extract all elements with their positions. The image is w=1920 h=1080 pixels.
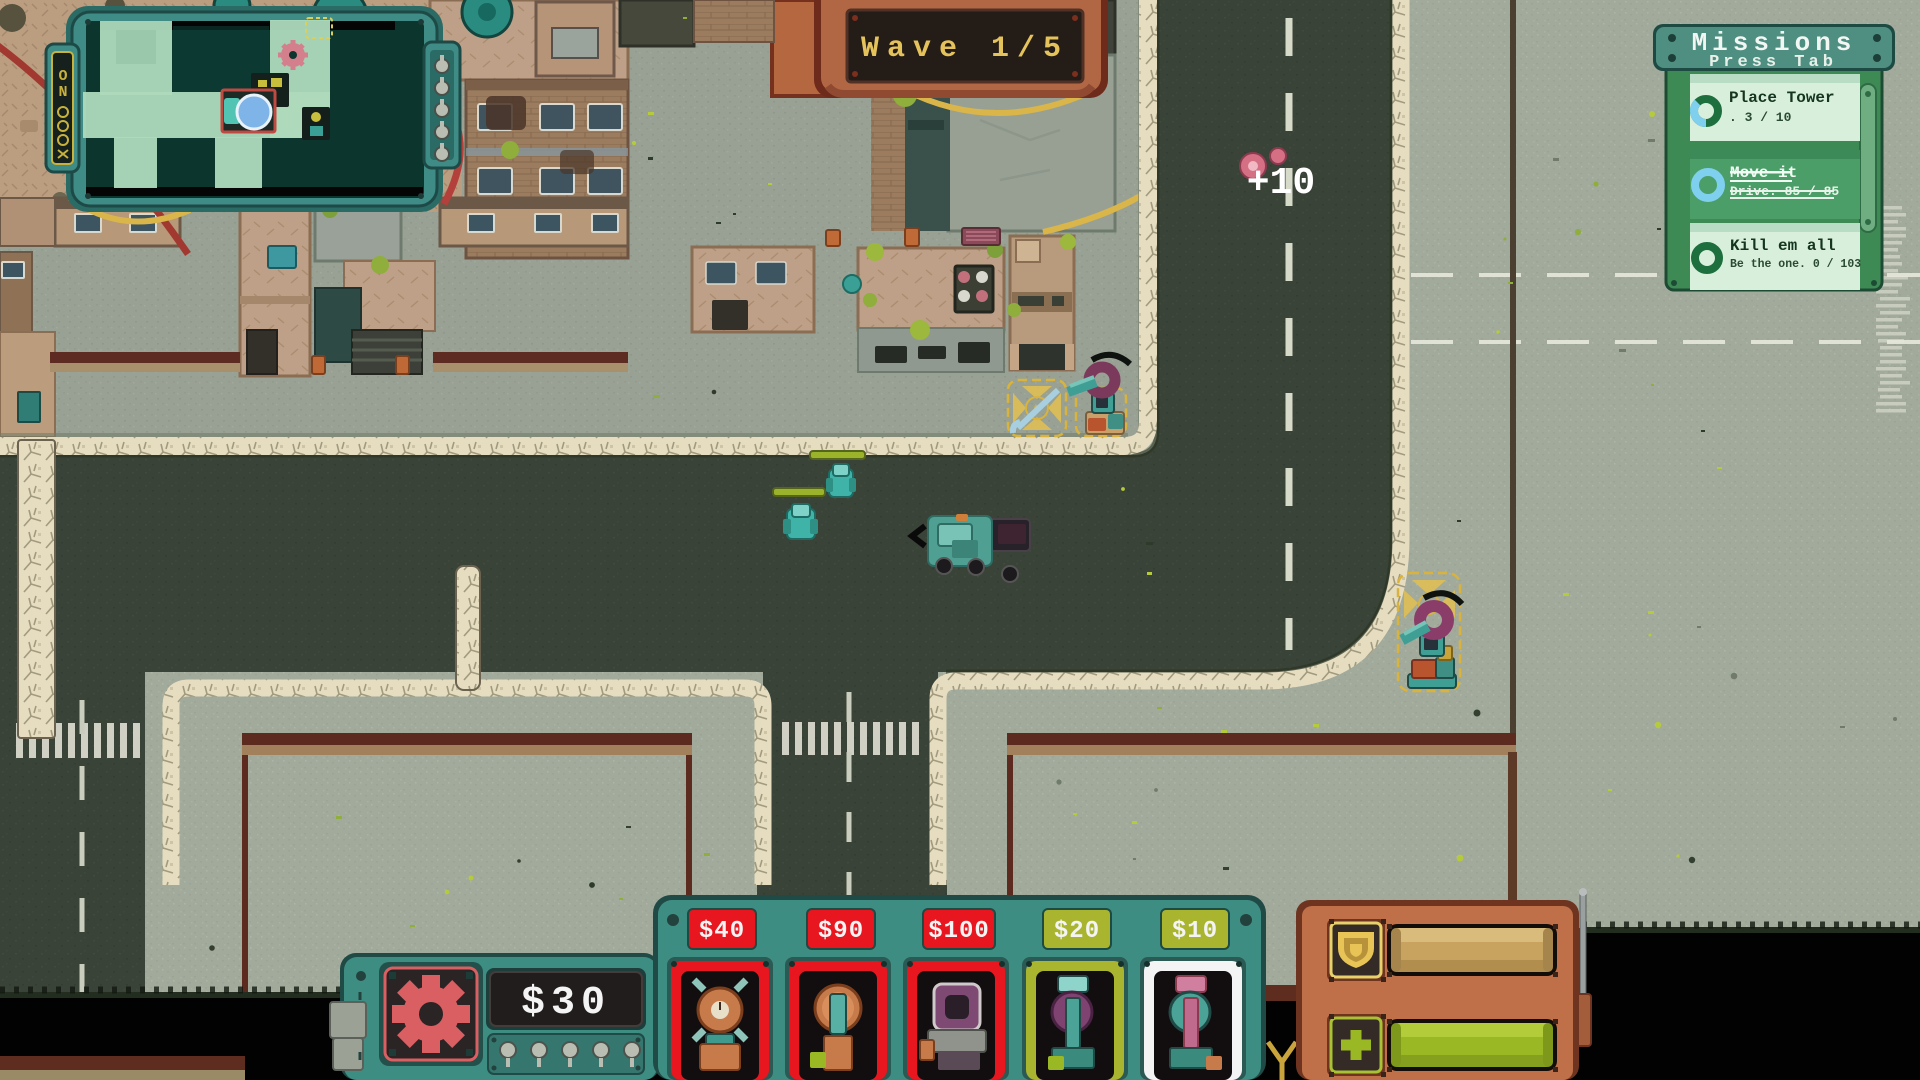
svg-text:Place Tower: Place Tower xyxy=(1729,89,1835,107)
svg-text:$100: $100 xyxy=(928,918,990,945)
svg-text:$90: $90 xyxy=(818,918,864,945)
svg-text:. 3 / 10: . 3 / 10 xyxy=(1729,110,1792,125)
svg-text:$40: $40 xyxy=(699,918,745,945)
svg-text:+10: +10 xyxy=(1247,162,1315,205)
svg-text:N: N xyxy=(58,84,67,101)
svg-text:Kill em all: Kill em all xyxy=(1730,237,1836,255)
svg-text:Be the one. 0 / 103: Be the one. 0 / 103 xyxy=(1730,258,1861,271)
svg-text:Press Tab: Press Tab xyxy=(1709,53,1837,72)
svg-text:O: O xyxy=(58,68,67,85)
svg-text:$20: $20 xyxy=(1054,918,1100,945)
svg-text:$10: $10 xyxy=(1172,918,1218,945)
svg-text:Wave 1/5: Wave 1/5 xyxy=(861,32,1069,66)
svg-text:$30: $30 xyxy=(521,981,611,1026)
